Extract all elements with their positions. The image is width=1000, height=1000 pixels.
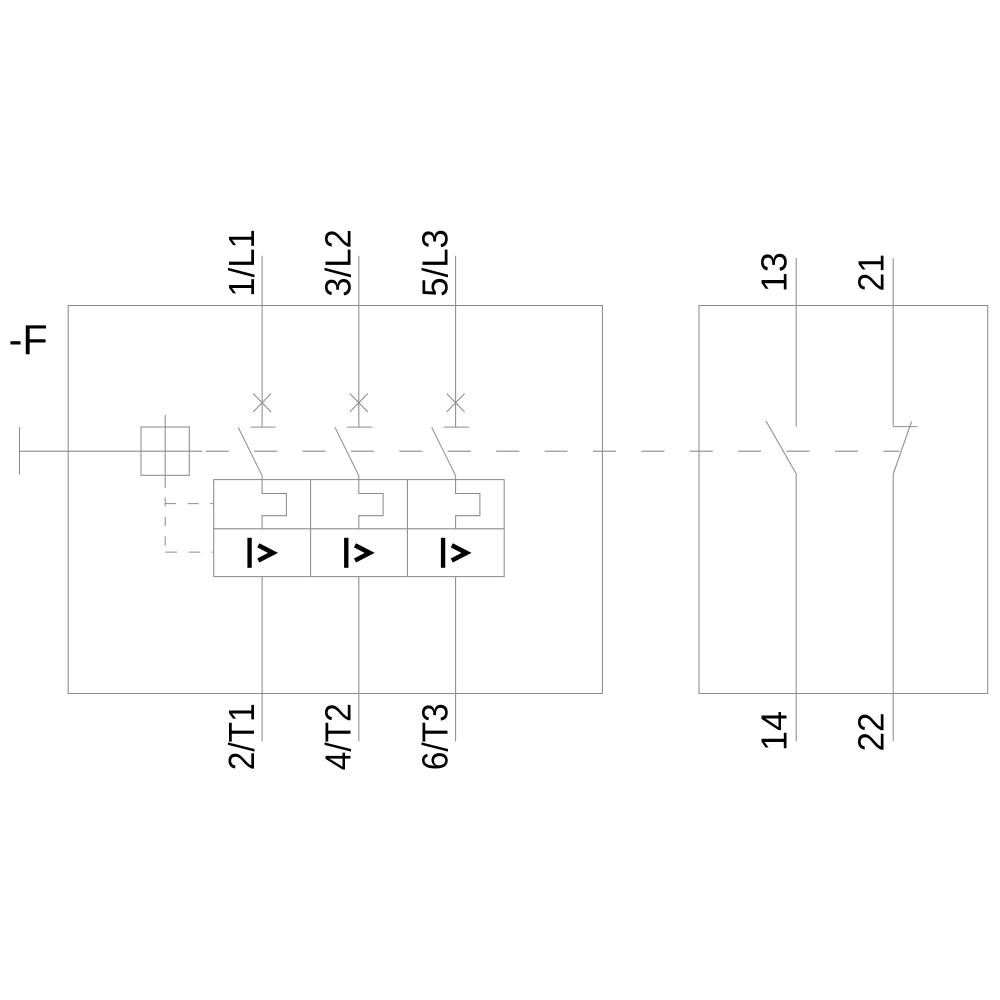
svg-text:4/T2: 4/T2 <box>318 703 359 770</box>
svg-text:6/T3: 6/T3 <box>415 703 456 770</box>
svg-text:13: 13 <box>754 252 795 292</box>
svg-text:2/T1: 2/T1 <box>221 703 262 770</box>
svg-text:22: 22 <box>851 713 892 752</box>
svg-text:21: 21 <box>851 254 892 292</box>
svg-text:3/L2: 3/L2 <box>318 229 359 297</box>
svg-text:14: 14 <box>754 711 795 751</box>
svg-text:5/L3: 5/L3 <box>415 229 456 297</box>
svg-text:1/L1: 1/L1 <box>221 229 262 297</box>
svg-text:-F: -F <box>9 316 48 363</box>
